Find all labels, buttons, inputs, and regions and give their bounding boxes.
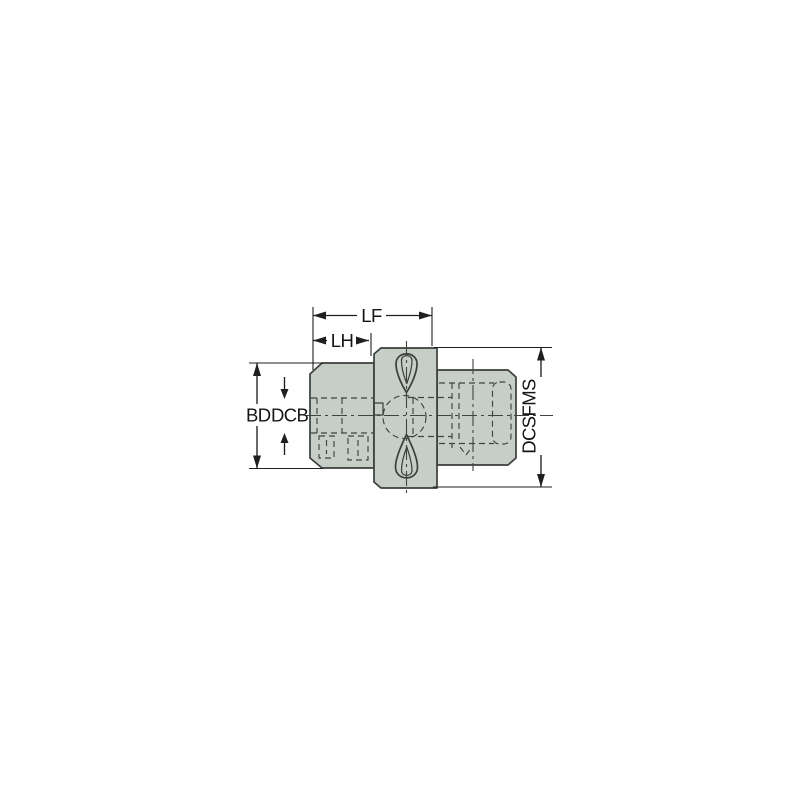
drawing-canvas: LF LH BD	[0, 0, 800, 800]
part-right-body	[437, 370, 516, 465]
dim-label-dcsfms: DCSFMS	[519, 379, 540, 454]
dimension-lh: LH	[313, 330, 371, 356]
engineering-drawing: LF LH BD	[0, 0, 800, 800]
dim-label-lf: LF	[361, 305, 382, 326]
dimension-dcb: DCB	[271, 377, 309, 455]
dim-label-bd: BD	[246, 405, 271, 426]
dim-label-lh: LH	[331, 330, 353, 351]
dim-label-dcb: DCB	[271, 405, 309, 426]
